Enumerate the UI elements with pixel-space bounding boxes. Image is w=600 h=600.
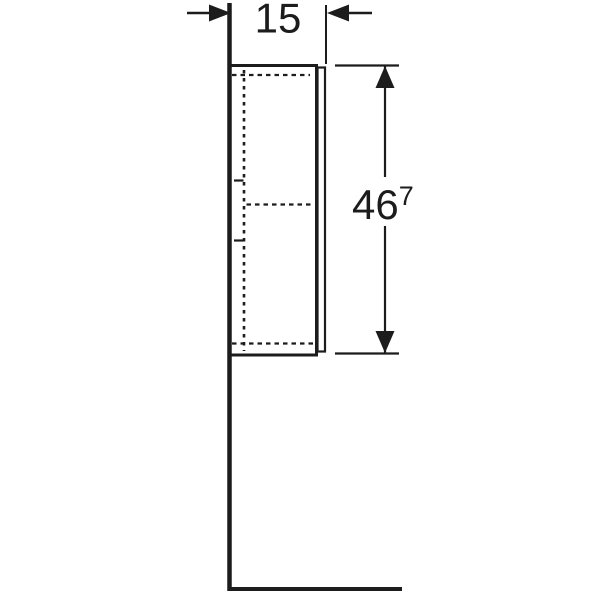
height-dim-arrow-down	[376, 331, 395, 353]
cabinet-side-view-diagram: 15 467	[0, 0, 600, 600]
technical-drawing-canvas: 15 467	[0, 0, 600, 600]
cabinet	[230, 66, 326, 356]
cabinet-door-panel	[318, 68, 326, 352]
height-dimension-value: 46	[352, 181, 399, 228]
height-dimension-superscript: 7	[399, 181, 414, 211]
cabinet-body	[230, 66, 317, 356]
height-dimension: 467	[335, 66, 415, 354]
height-dim-arrow-up	[376, 66, 395, 88]
width-dimension-label: 15	[255, 0, 302, 42]
width-dimension: 15	[187, 0, 372, 64]
wall-and-floor	[228, 3, 403, 591]
